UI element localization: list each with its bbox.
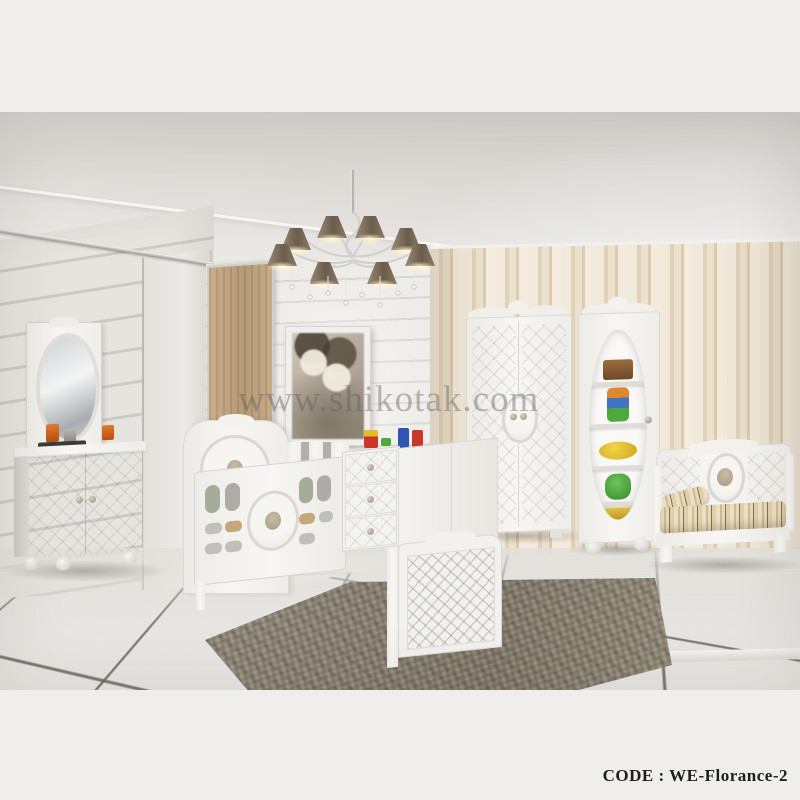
room-photo: www.shikotak.com <box>0 112 800 690</box>
rail-cutout <box>225 540 242 553</box>
bench-back-quilt <box>748 452 786 504</box>
toy-robot <box>607 387 629 422</box>
rail-cutout <box>299 476 313 503</box>
footboard-lattice <box>407 547 495 650</box>
dresser-foot <box>24 557 39 571</box>
dresser-candle <box>46 424 59 443</box>
rail-cutout <box>319 510 333 522</box>
toy-ship <box>603 359 633 380</box>
drawer-knob <box>367 496 374 504</box>
cabinet-body <box>578 311 660 544</box>
toy-moose <box>605 473 631 500</box>
mirror-crest <box>49 317 79 327</box>
drawer <box>345 513 397 549</box>
drawer-knob <box>367 528 374 536</box>
rail-cutout <box>205 542 222 555</box>
dresser-side <box>14 456 28 557</box>
shelf <box>589 381 647 387</box>
rail-cutout <box>225 520 242 533</box>
panel-seam <box>451 445 452 543</box>
bench-leg <box>660 545 672 563</box>
bench-leg <box>774 535 786 553</box>
crystal-drops <box>290 270 416 307</box>
dresser-knob-left <box>76 496 83 503</box>
shelf <box>589 423 647 429</box>
door-seam <box>85 454 86 554</box>
cabinet-knob <box>645 416 652 423</box>
crib-drawers <box>342 446 400 552</box>
rail-cutout <box>299 512 315 525</box>
cabinet-foot <box>586 541 601 555</box>
toy-robot-block <box>364 430 378 448</box>
rail-cutout <box>205 484 220 514</box>
rail-cutout <box>225 482 240 512</box>
toy-green-block <box>381 438 391 446</box>
drawer-knob <box>367 464 374 472</box>
bear-motif <box>717 468 733 487</box>
display-cabinet <box>578 311 658 556</box>
crib-foot-leg <box>387 547 398 668</box>
drawer <box>345 481 397 517</box>
dresser-knob-right <box>89 496 96 503</box>
chandelier <box>262 164 442 324</box>
crib-leg <box>196 580 205 610</box>
bear-motif <box>265 511 281 531</box>
bench-medallion <box>707 452 745 504</box>
product-code: CODE : WE-Florance-2 <box>603 766 788 786</box>
crib-rail-medallion <box>247 488 299 553</box>
cabinet-foot <box>634 538 649 552</box>
cabinet-oval-window <box>589 329 647 521</box>
rail-cutout <box>317 475 331 502</box>
drawer <box>345 449 397 485</box>
dresser-foot <box>122 552 137 566</box>
crib-front-rail <box>194 456 346 586</box>
dresser-doors <box>28 450 144 558</box>
wardrobe-foot <box>550 529 562 538</box>
shelf <box>589 501 647 507</box>
chain <box>351 170 355 214</box>
watermark: www.shikotak.com <box>238 378 539 421</box>
shelf <box>589 465 647 471</box>
dresser <box>14 441 146 570</box>
rail-cutout <box>299 532 315 545</box>
product-photo-page: www.shikotak.com CODE : WE-Florance-2 <box>0 0 800 800</box>
bench <box>652 443 794 572</box>
rail-cutout <box>205 522 222 535</box>
crib-footboard <box>398 533 502 658</box>
dresser-candle-2 <box>102 425 114 441</box>
top-margin <box>0 0 800 112</box>
toy-submarine <box>599 441 637 460</box>
toy-boat <box>603 507 633 521</box>
